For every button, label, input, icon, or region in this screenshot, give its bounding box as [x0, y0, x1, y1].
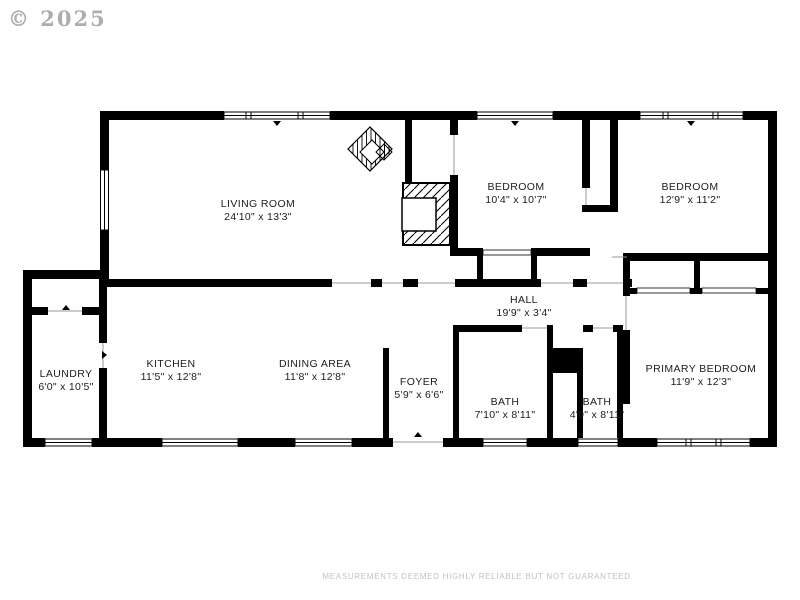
room-label-primary-bedroom: PRIMARY BEDROOM 11'9" x 12'3" [646, 363, 757, 389]
wall [694, 253, 700, 294]
room-name: PRIMARY BEDROOM [646, 363, 757, 376]
wall [330, 111, 477, 120]
window [477, 112, 553, 119]
wall [109, 279, 332, 287]
wall [453, 325, 522, 332]
room-name: BATH [570, 396, 625, 409]
window [578, 439, 618, 446]
wall [450, 248, 477, 256]
wall [527, 438, 578, 447]
window [483, 439, 527, 446]
wall [690, 288, 702, 294]
room-label-bedroom-top-middle: BEDROOM 10'4" x 10'7" [485, 181, 547, 207]
room-label-kitchen: KITCHEN 11'5" x 12'8" [141, 358, 202, 384]
window [101, 170, 109, 230]
window [295, 439, 352, 446]
wall [383, 348, 389, 438]
wall [618, 438, 657, 447]
fireplace-symbol [402, 183, 450, 245]
room-name: BATH [475, 396, 536, 409]
room-label-bedroom-top-right: BEDROOM 12'9" x 11'2" [660, 181, 721, 207]
wall [610, 120, 618, 212]
wall [99, 279, 107, 343]
bifold-door [483, 250, 531, 255]
bifold-door [637, 288, 690, 293]
wall [405, 120, 412, 182]
wall [99, 368, 107, 438]
wall [23, 270, 32, 447]
wall [450, 120, 458, 135]
wall [582, 205, 618, 212]
window [162, 439, 238, 446]
room-dims: 5'9" x 6'6" [394, 389, 443, 402]
room-name: FOYER [394, 376, 443, 389]
wall [443, 438, 483, 447]
room-label-bath-right: BATH 4'9" x 8'11" [570, 396, 625, 422]
window [657, 439, 750, 446]
wall [371, 279, 382, 287]
room-name: BEDROOM [485, 181, 547, 194]
wall [403, 279, 418, 287]
room-dims: 12'9" x 11'2" [660, 194, 721, 207]
wall [750, 438, 777, 447]
wall [455, 279, 541, 287]
wall [547, 325, 553, 438]
room-dims: 4'9" x 8'11" [570, 409, 625, 422]
window [224, 112, 330, 119]
wall [82, 307, 99, 315]
room-name: LIVING ROOM [221, 198, 295, 211]
room-dims: 6'0" x 10'5" [38, 381, 93, 394]
wall [573, 279, 587, 287]
room-name: HALL [496, 294, 551, 307]
wall [768, 111, 777, 447]
wall [23, 270, 108, 279]
floor-plan-drawing [0, 0, 800, 600]
opening-marker [62, 305, 70, 310]
stove-symbol [348, 127, 392, 171]
opening-marker [687, 121, 695, 126]
wall [553, 348, 583, 373]
wall [756, 288, 768, 294]
room-dims: 7'10" x 8'11" [475, 409, 536, 422]
window [45, 439, 92, 446]
room-label-foyer: FOYER 5'9" x 6'6" [394, 376, 443, 402]
wall [623, 288, 637, 294]
room-name: KITCHEN [141, 358, 202, 371]
room-dims: 19'9" x 3'4" [496, 307, 551, 320]
opening-marker [414, 432, 422, 437]
room-dims: 10'4" x 10'7" [485, 194, 547, 207]
room-name: BEDROOM [660, 181, 721, 194]
wall [32, 307, 48, 315]
wall [477, 248, 483, 287]
wall [92, 438, 162, 447]
wall [450, 175, 458, 248]
window [640, 112, 743, 119]
floor-plan: © 2025 [0, 0, 800, 600]
opening-marker [102, 351, 107, 359]
room-label-laundry: LAUNDRY 6'0" x 10'5" [38, 368, 93, 394]
wall [537, 248, 590, 256]
wall [583, 325, 593, 332]
room-dims: 11'9" x 12'3" [646, 376, 757, 389]
bifold-door [702, 288, 756, 293]
wall [100, 111, 224, 120]
wall [100, 111, 109, 170]
room-dims: 11'5" x 12'8" [141, 371, 202, 384]
room-label-living-room: LIVING ROOM 24'10" x 13'3" [221, 198, 295, 224]
wall [582, 120, 590, 188]
room-label-hall: HALL 19'9" x 3'4" [496, 294, 551, 320]
room-dims: 11'8" x 12'8" [279, 371, 351, 384]
room-label-bath-left: BATH 7'10" x 8'11" [475, 396, 536, 422]
wall [238, 438, 295, 447]
wall [352, 438, 393, 447]
fireplace-firebox [402, 198, 436, 231]
wall [623, 330, 630, 404]
opening-marker [511, 121, 519, 126]
disclaimer: MEASUREMENTS DEEMED HIGHLY RELIABLE BUT … [322, 572, 633, 581]
room-dims: 24'10" x 13'3" [221, 211, 295, 224]
room-label-dining-area: DINING AREA 11'8" x 12'8" [279, 358, 351, 384]
room-name: DINING AREA [279, 358, 351, 371]
wall [553, 111, 640, 120]
room-name: LAUNDRY [38, 368, 93, 381]
wall [531, 248, 537, 287]
wall [453, 325, 459, 438]
opening-marker [273, 121, 281, 126]
